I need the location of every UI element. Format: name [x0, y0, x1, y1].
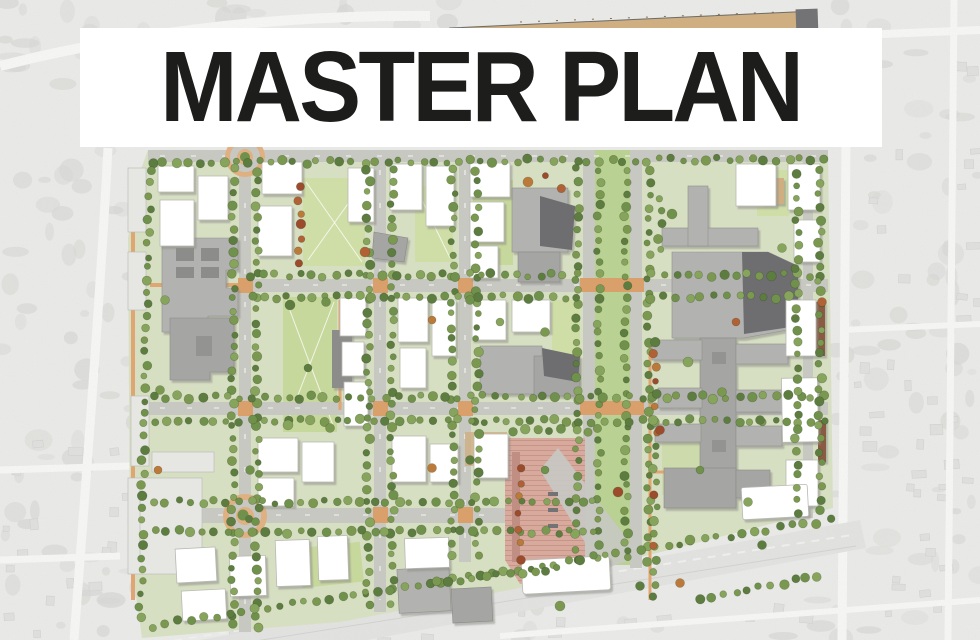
master-plan-page: MASTER PLAN — [0, 0, 980, 640]
title-banner: MASTER PLAN — [80, 28, 882, 147]
page-title: MASTER PLAN — [161, 30, 802, 145]
